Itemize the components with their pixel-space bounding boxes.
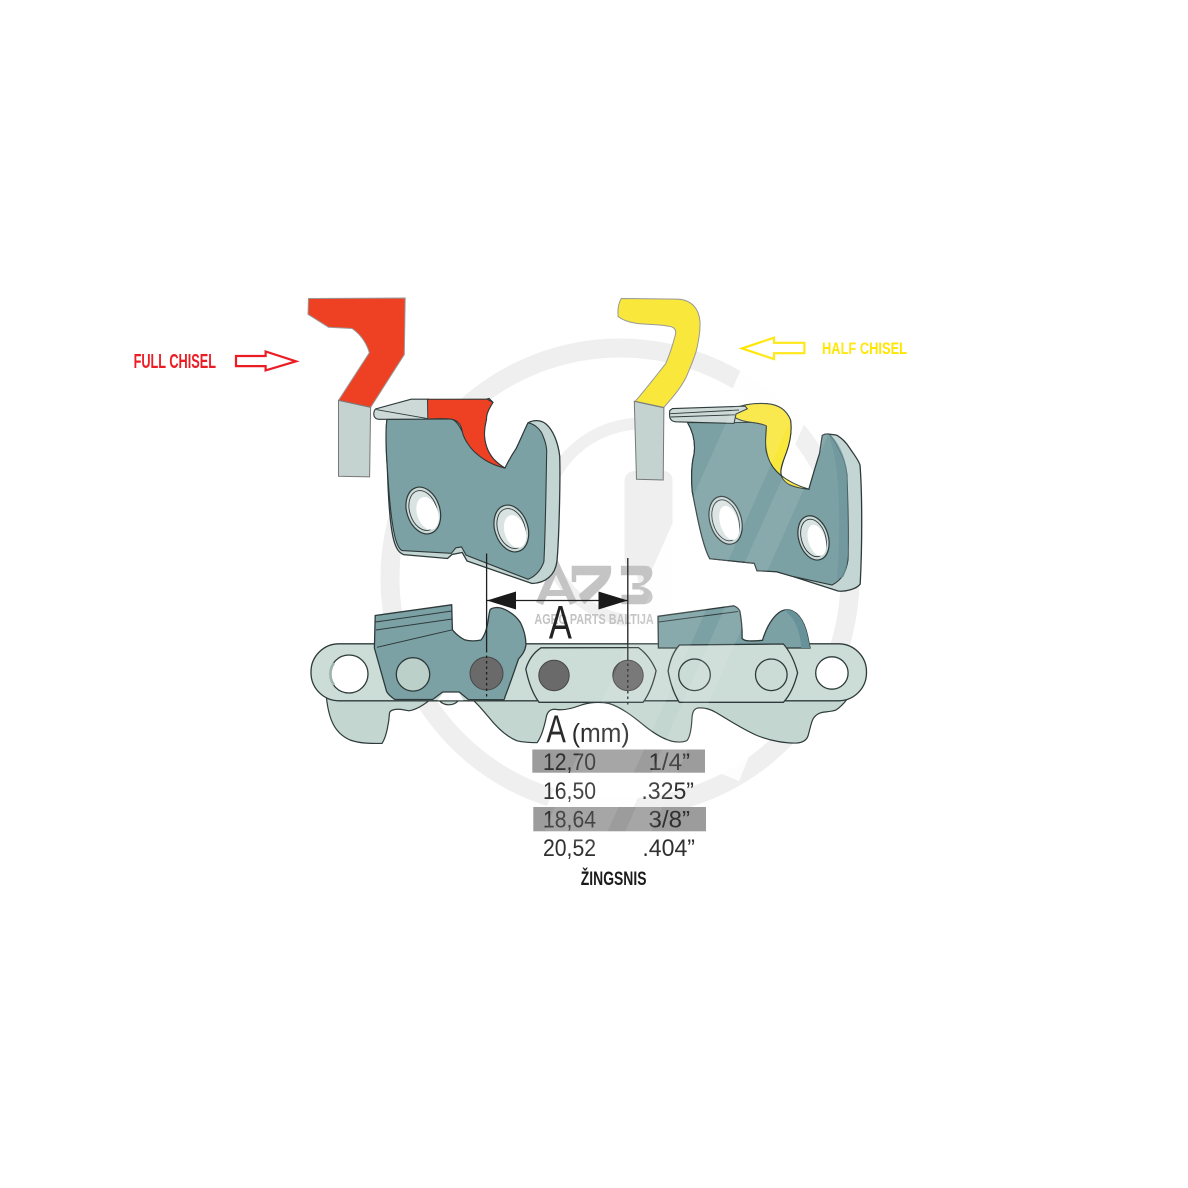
svg-text:ŽINGSNIS: ŽINGSNIS: [581, 868, 647, 890]
svg-text:.404”: .404”: [642, 835, 695, 862]
svg-text:A: A: [546, 709, 566, 752]
svg-text:A: A: [549, 595, 572, 648]
svg-text:FULL CHISEL: FULL CHISEL: [134, 351, 216, 373]
